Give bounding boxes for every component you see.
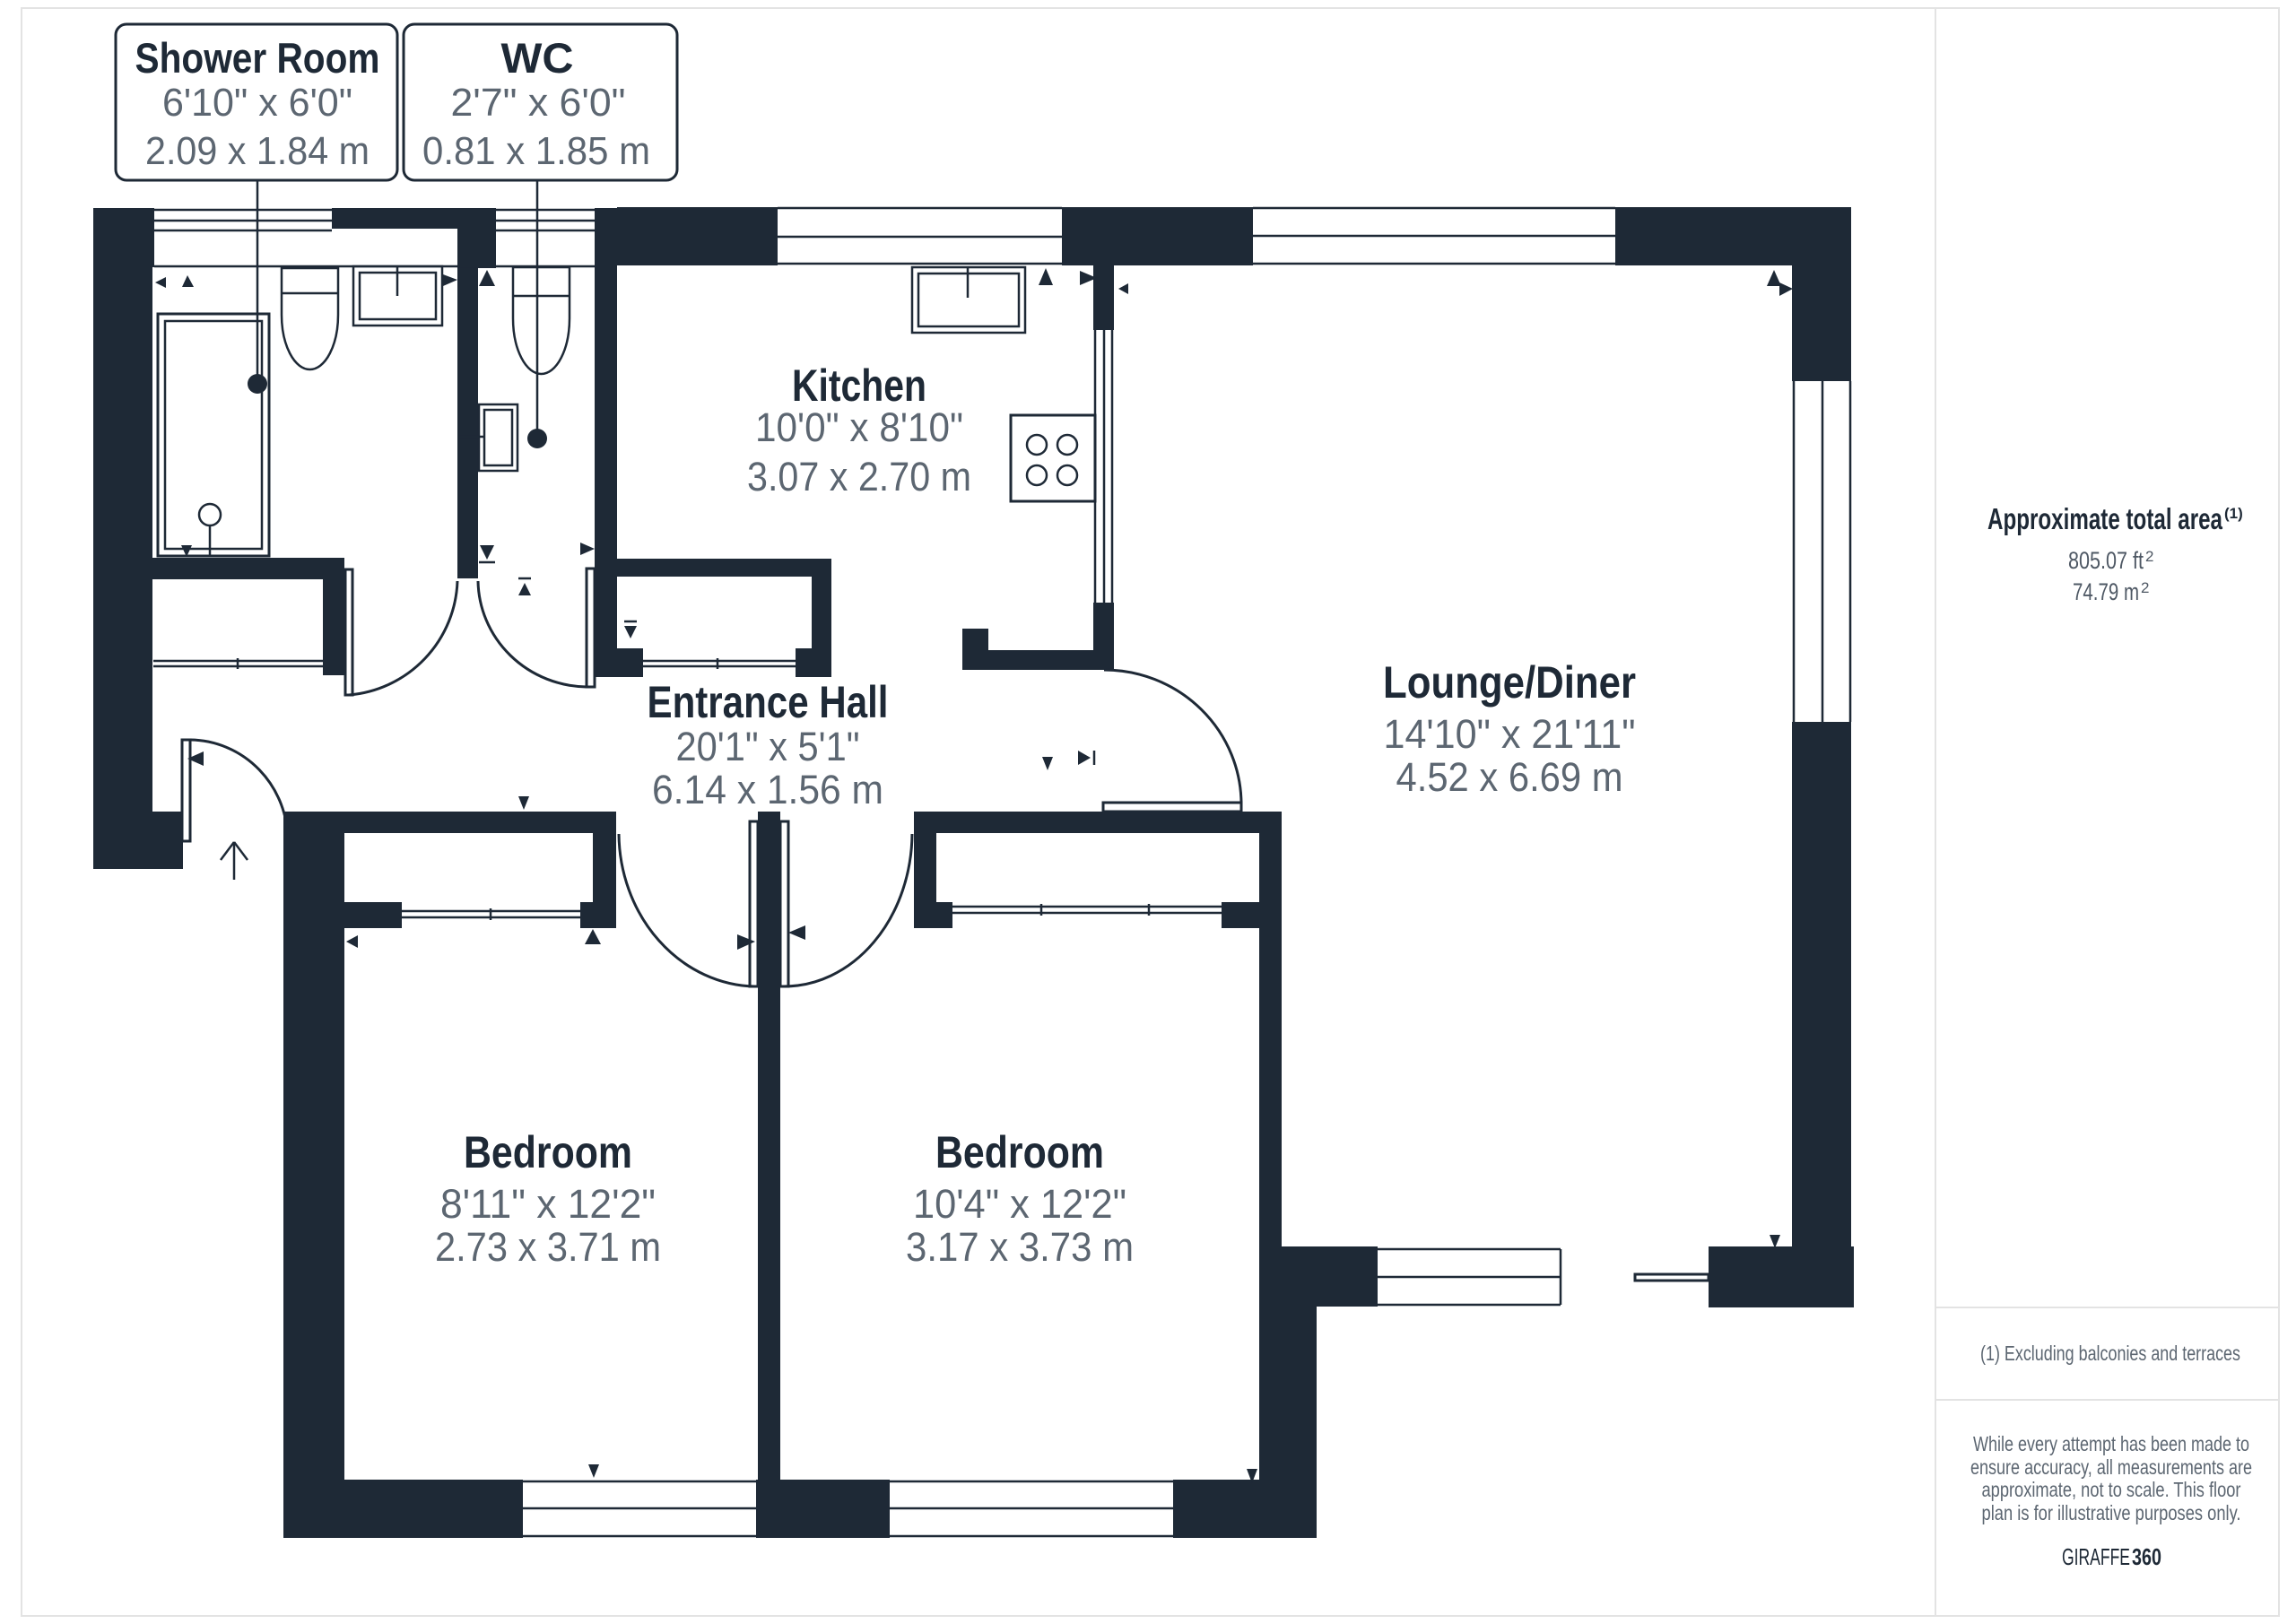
svg-text:(1): (1) — [2224, 505, 2243, 522]
svg-text:805.07 ft: 805.07 ft — [2068, 547, 2144, 574]
svg-text:6'10" x 6'0": 6'10" x 6'0" — [162, 81, 352, 125]
svg-text:8'11" x 12'2": 8'11" x 12'2" — [440, 1181, 656, 1227]
svg-text:WC: WC — [501, 34, 574, 82]
svg-text:10'4" x 12'2": 10'4" x 12'2" — [913, 1181, 1126, 1227]
svg-text:While every attempt has been m: While every attempt has been made to — [1973, 1432, 2249, 1455]
svg-text:(1) Excluding balconies and te: (1) Excluding balconies and terraces — [1980, 1342, 2240, 1365]
svg-text:0.81 x 1.85 m: 0.81 x 1.85 m — [422, 129, 650, 173]
svg-text:20'1" x 5'1": 20'1" x 5'1" — [676, 724, 860, 769]
svg-text:2'7" x 6'0": 2'7" x 6'0" — [451, 81, 626, 125]
svg-text:2: 2 — [2141, 579, 2149, 596]
svg-text:14'10" x 21'11": 14'10" x 21'11" — [1384, 711, 1636, 757]
svg-text:10'0" x 8'10": 10'0" x 8'10" — [755, 404, 963, 450]
svg-text:Approximate total area: Approximate total area — [1987, 502, 2222, 535]
svg-text:360: 360 — [2132, 1543, 2161, 1570]
svg-text:3.17 x 3.73 m: 3.17 x 3.73 m — [906, 1224, 1134, 1270]
svg-text:Kitchen: Kitchen — [792, 360, 926, 411]
svg-text:6.14 x 1.56 m: 6.14 x 1.56 m — [652, 767, 883, 812]
svg-text:3.07 x 2.70 m: 3.07 x 2.70 m — [747, 454, 971, 499]
svg-text:Lounge/Diner: Lounge/Diner — [1383, 657, 1636, 708]
svg-text:2: 2 — [2145, 548, 2153, 565]
svg-text:2.09 x 1.84 m: 2.09 x 1.84 m — [145, 129, 370, 173]
svg-text:74.79 m: 74.79 m — [2073, 578, 2139, 605]
svg-text:ensure accuracy, all measureme: ensure accuracy, all measurements are — [1970, 1455, 2252, 1479]
svg-text:4.52 x 6.69 m: 4.52 x 6.69 m — [1396, 754, 1623, 800]
svg-text:Shower Room: Shower Room — [135, 34, 380, 82]
svg-text:2.73 x 3.71 m: 2.73 x 3.71 m — [435, 1224, 661, 1270]
svg-text:plan is for illustrative purpo: plan is for illustrative purposes only. — [1982, 1501, 2241, 1524]
svg-text:GIRAFFE: GIRAFFE — [2062, 1543, 2130, 1570]
svg-text:Bedroom: Bedroom — [935, 1127, 1104, 1177]
svg-text:approximate, not to scale. Thi: approximate, not to scale. This floor — [1982, 1478, 2241, 1501]
svg-text:Bedroom: Bedroom — [464, 1127, 632, 1177]
svg-text:Entrance Hall: Entrance Hall — [648, 677, 889, 727]
